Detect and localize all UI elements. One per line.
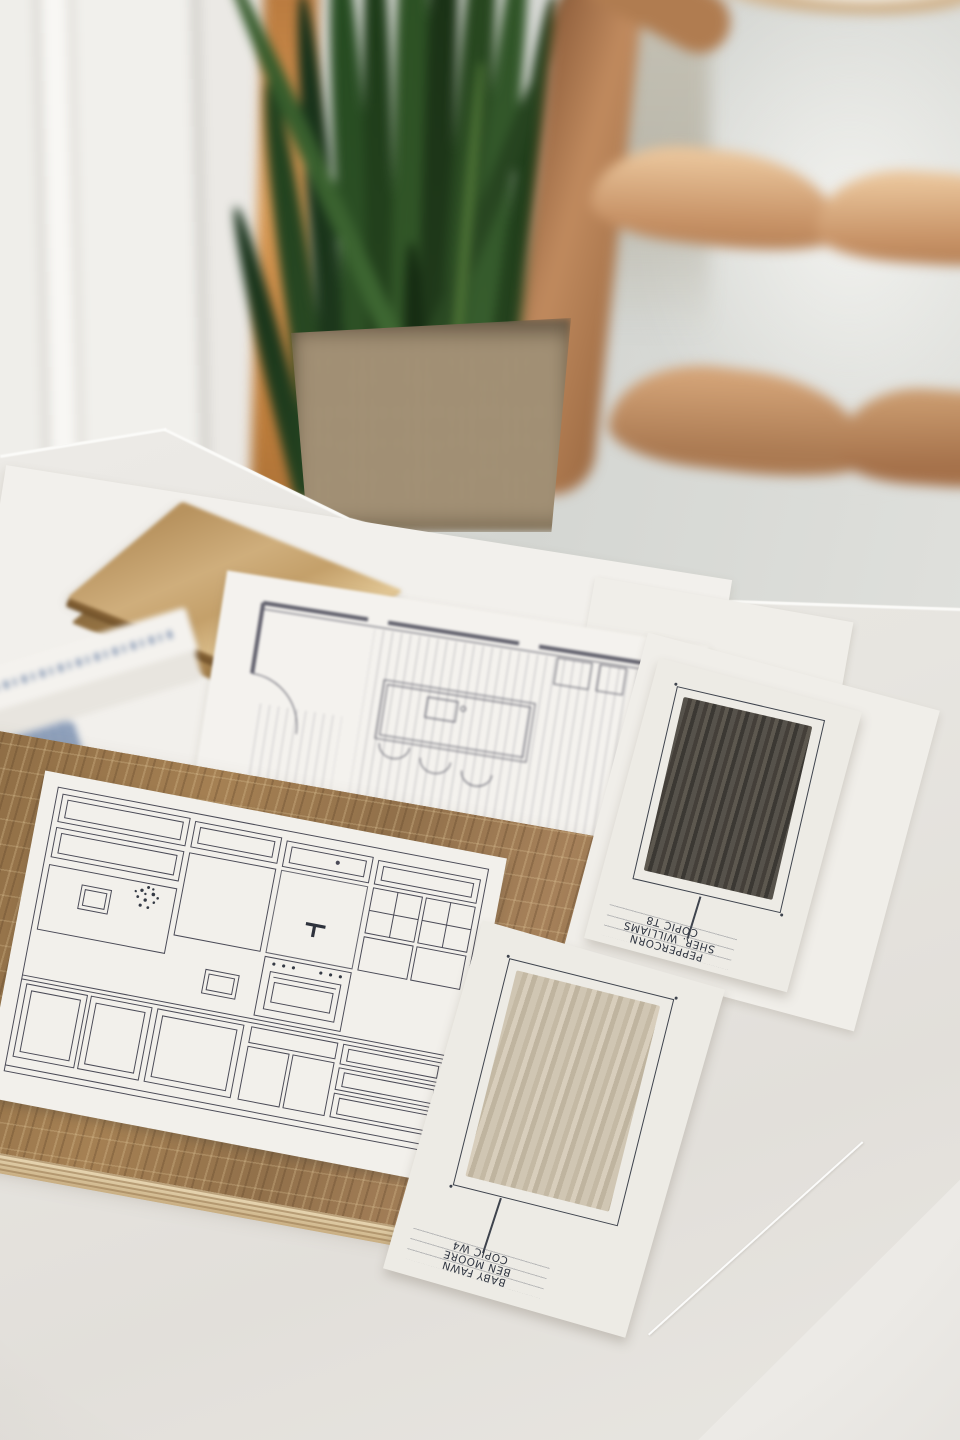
frame-tick [506,954,510,958]
swatch-frame [632,686,825,913]
paint-swatch-baby-fawn [465,970,660,1212]
paint-swatch-peppercorn [644,697,813,900]
photo-scene: PEPPERCORN SHER. WILLIAMS COPIC T8 BABY … [0,0,960,1440]
swatch-frame [453,958,675,1226]
chair-middle-slat [815,164,960,271]
frame-tick [674,996,678,1000]
chair-top-slat [713,0,960,14]
frame-tick [449,1184,453,1188]
woven-basket-planter [291,318,571,532]
chair-lower-slat [837,383,960,493]
frame-tick [780,913,784,917]
frame-tick [674,682,678,686]
white-door-panel [0,0,275,493]
chair-lower-slat [605,355,875,488]
leader-line [482,1198,502,1254]
